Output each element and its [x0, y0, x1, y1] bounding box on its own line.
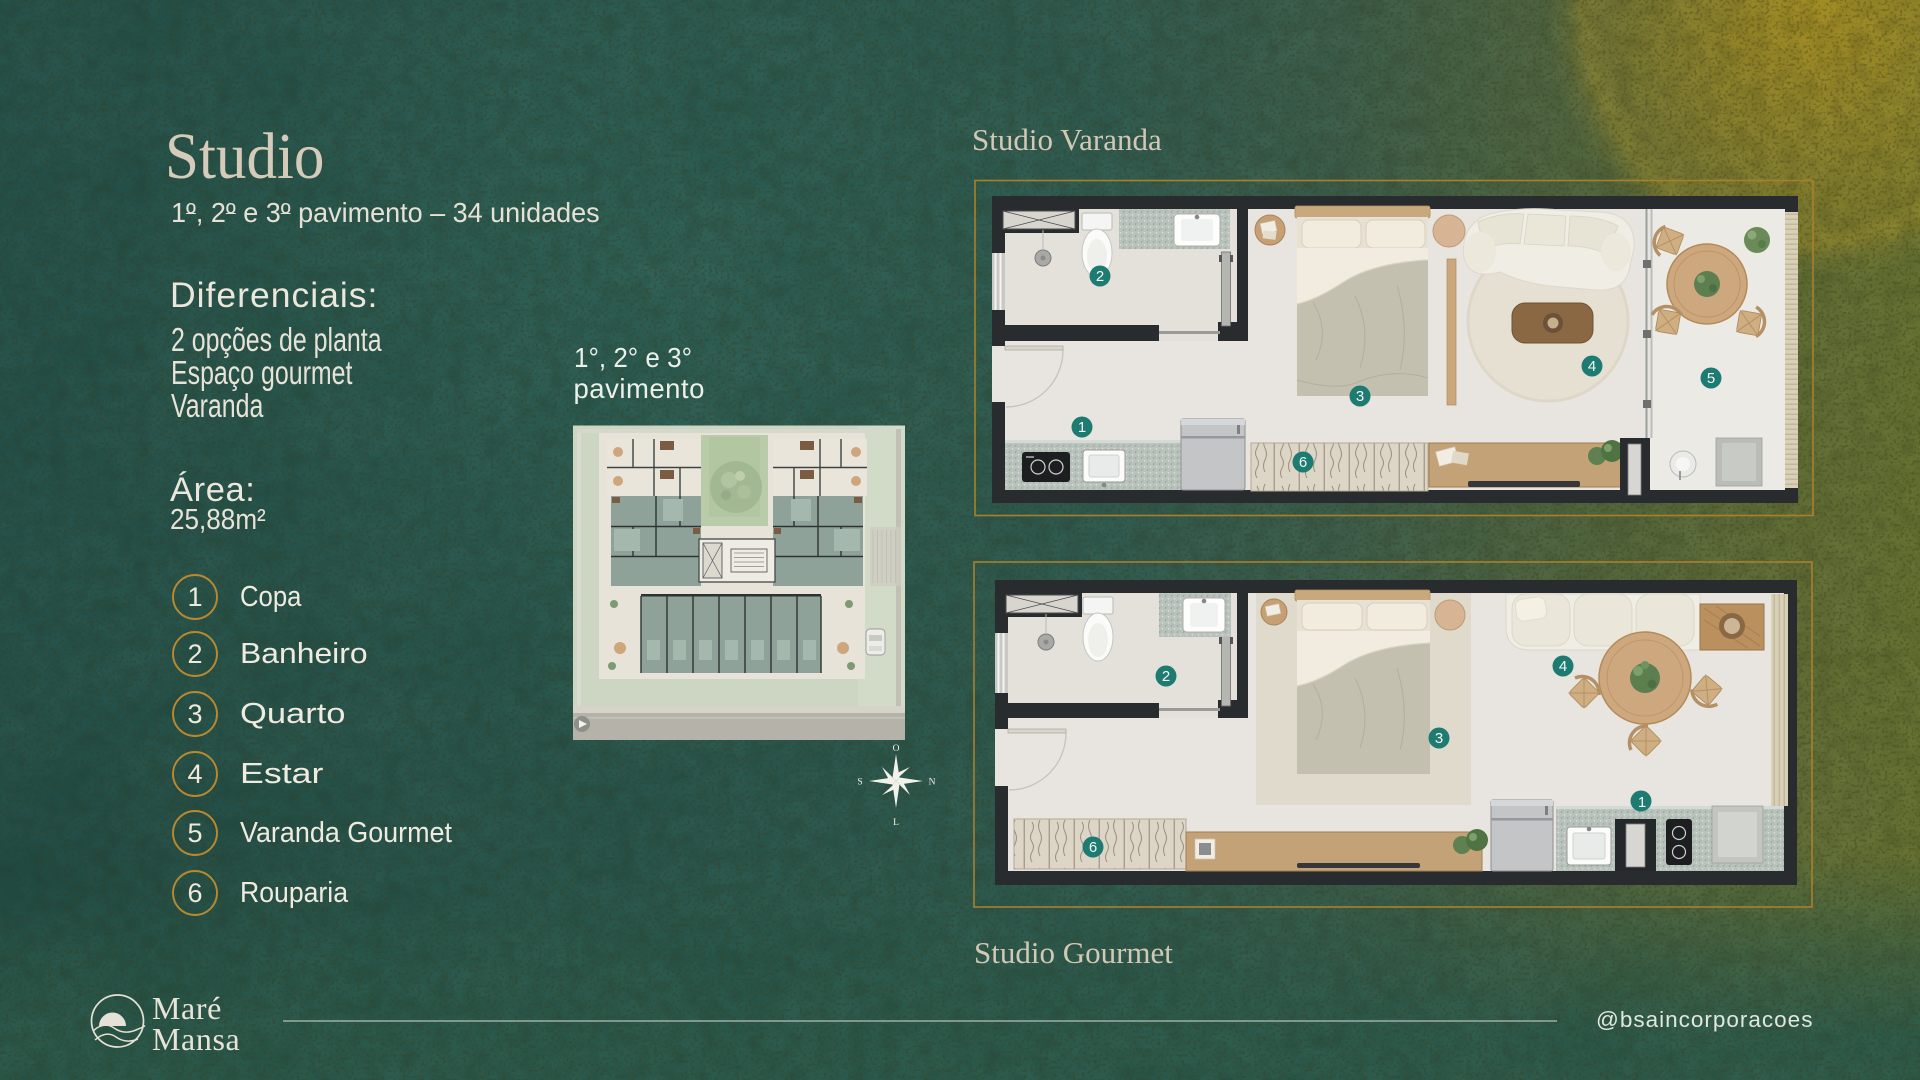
svg-text:3: 3: [1356, 388, 1364, 405]
svg-text:Rouparia: Rouparia: [240, 876, 348, 908]
svg-text:6: 6: [1089, 839, 1097, 856]
svg-text:5: 5: [187, 818, 202, 848]
svg-text:Quarto: Quarto: [240, 697, 346, 729]
svg-text:Varanda Gourmet: Varanda Gourmet: [240, 816, 452, 848]
svg-text:3: 3: [187, 699, 202, 729]
svg-text:2: 2: [187, 639, 202, 669]
svg-text:4: 4: [1559, 658, 1567, 675]
svg-text:1: 1: [187, 582, 202, 612]
svg-text:1: 1: [1078, 419, 1086, 436]
svg-text:Banheiro: Banheiro: [240, 637, 368, 669]
svg-text:2: 2: [1162, 668, 1170, 685]
svg-text:Mansa: Mansa: [152, 1021, 240, 1057]
svg-text:S: S: [857, 778, 862, 788]
svg-text:4: 4: [1588, 358, 1596, 375]
svg-text:6: 6: [1299, 454, 1307, 471]
svg-text:O: O: [893, 744, 900, 754]
svg-text:6: 6: [187, 878, 202, 908]
svg-text:4: 4: [187, 759, 202, 789]
svg-text:2: 2: [1096, 268, 1104, 285]
svg-text:5: 5: [1707, 370, 1715, 387]
svg-text:3: 3: [1435, 730, 1443, 747]
svg-text:1: 1: [1638, 794, 1646, 811]
svg-text:L: L: [893, 818, 899, 828]
svg-text:N: N: [929, 778, 936, 788]
svg-text:Estar: Estar: [240, 757, 323, 789]
svg-text:Copa: Copa: [240, 580, 302, 612]
